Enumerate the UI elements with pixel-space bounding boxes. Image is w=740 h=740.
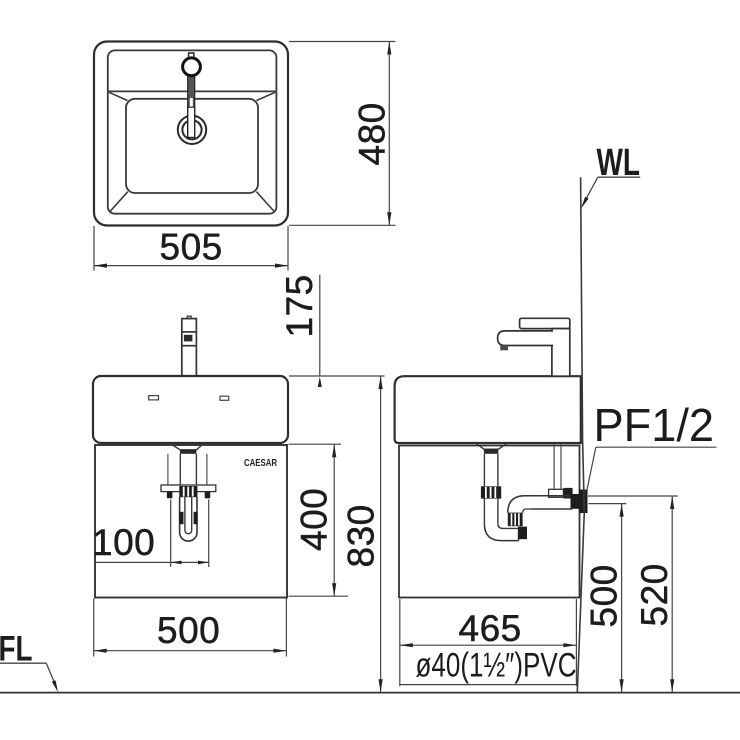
svg-text:830: 830 [341, 504, 382, 567]
svg-text:500: 500 [584, 564, 625, 627]
svg-text:465: 465 [459, 608, 522, 649]
svg-text:505: 505 [160, 226, 223, 267]
svg-text:CAESAR: CAESAR [244, 457, 277, 469]
svg-text:400: 400 [294, 488, 335, 551]
svg-text:480: 480 [352, 102, 393, 165]
svg-text:500: 500 [157, 610, 220, 651]
svg-text:FL: FL [0, 629, 33, 668]
svg-text:100: 100 [92, 522, 155, 563]
svg-text:520: 520 [634, 563, 675, 626]
svg-text:PF1/2: PF1/2 [594, 399, 715, 451]
svg-text:175: 175 [279, 274, 320, 337]
svg-text:ø40(1½″)PVC: ø40(1½″)PVC [416, 647, 577, 685]
